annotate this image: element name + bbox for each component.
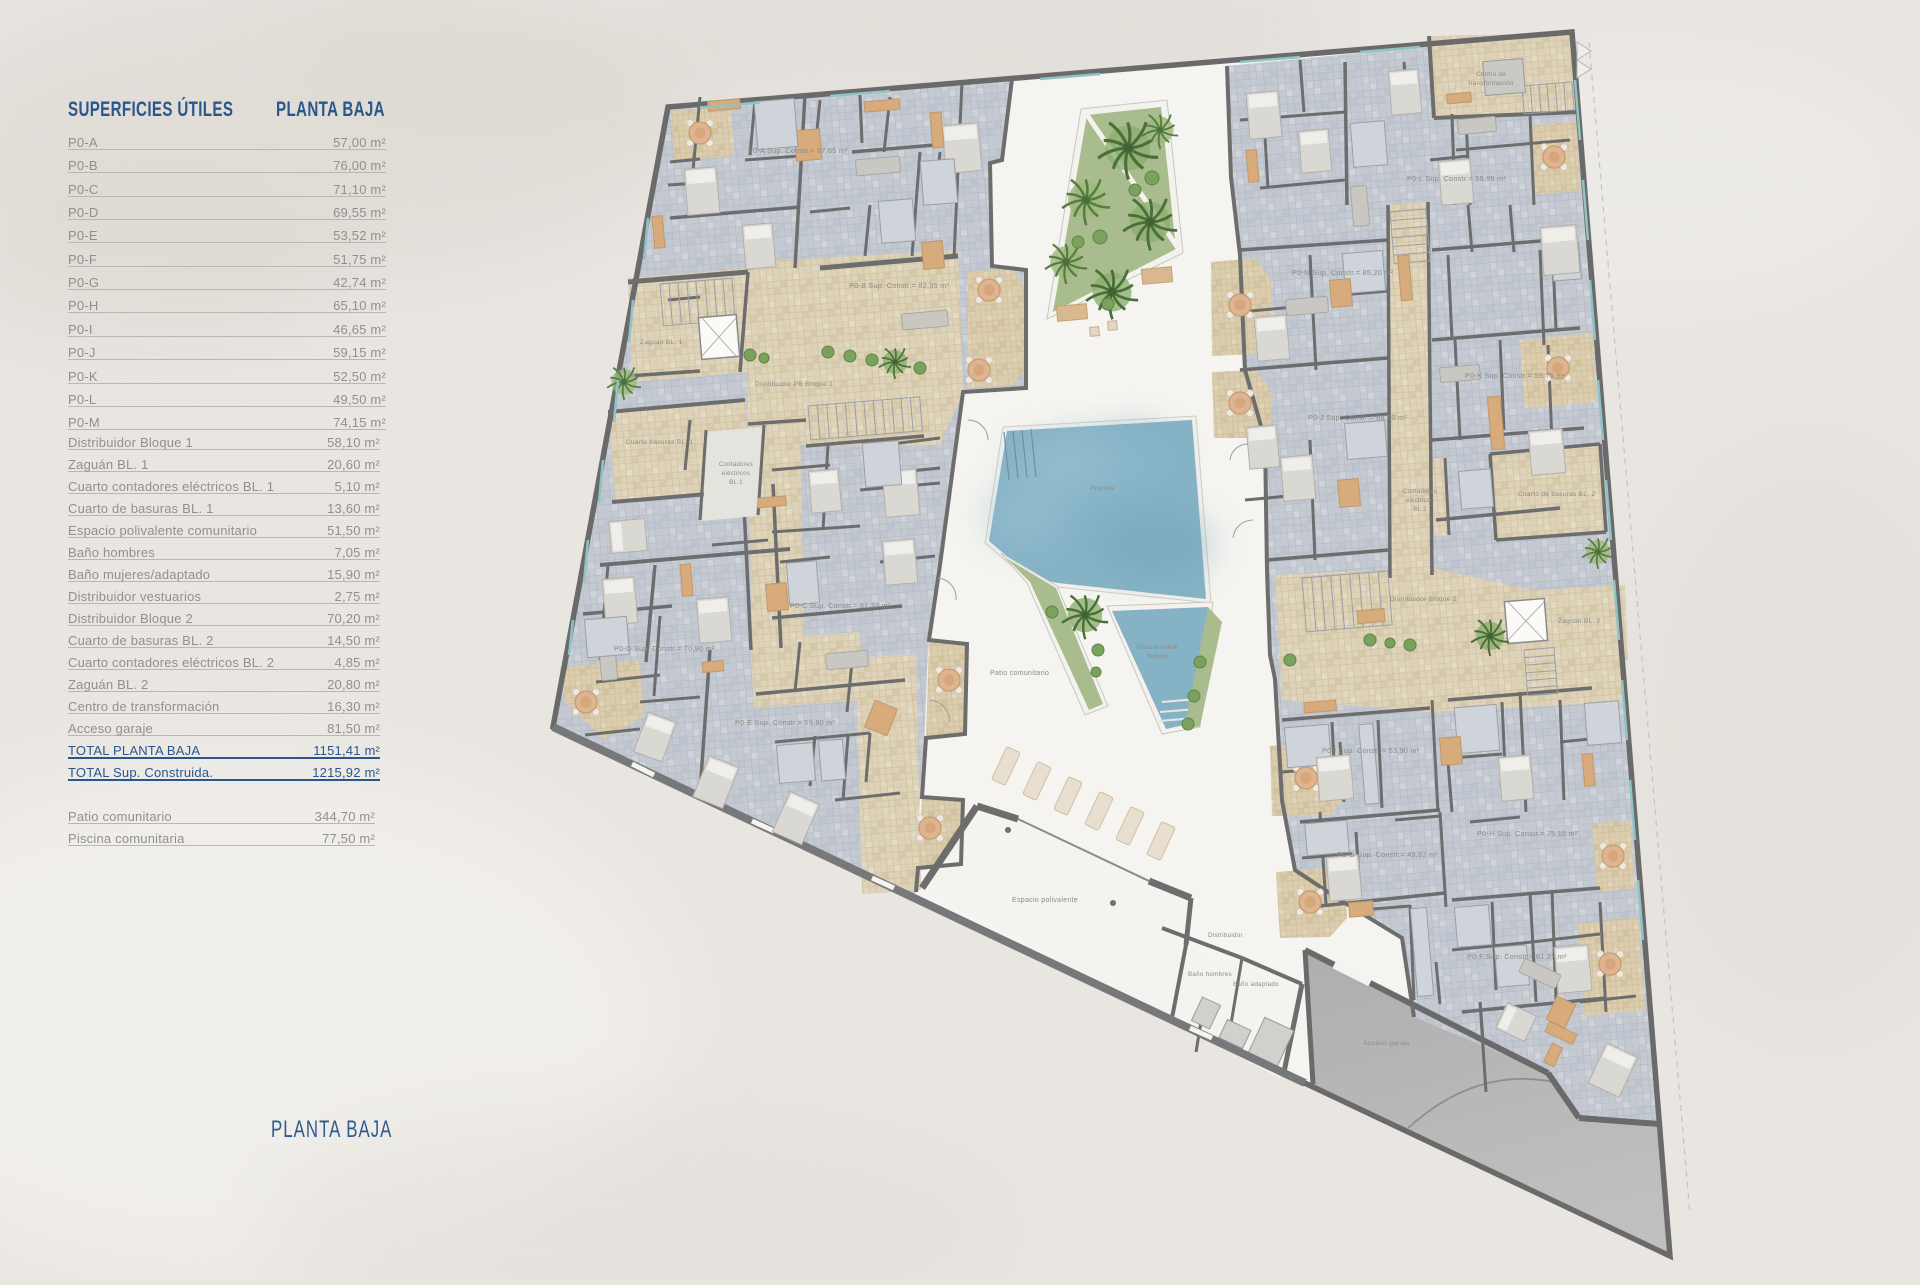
svg-text:P0-C Sup. Constr.= 81,32 m²: P0-C Sup. Constr.= 81,32 m²	[790, 601, 891, 610]
svg-text:Piscina: Piscina	[1090, 485, 1114, 492]
svg-text:Contadores: Contadores	[1403, 489, 1437, 495]
svg-text:Baño hombres: Baño hombres	[1188, 971, 1232, 978]
svg-text:transformación: transformación	[1468, 80, 1513, 87]
svg-text:P0-F Sup. Constr.= 61,25 m²: P0-F Sup. Constr.= 61,25 m²	[1467, 952, 1567, 961]
svg-text:Distribuidor Bloque 2: Distribuidor Bloque 2	[1390, 596, 1457, 603]
svg-text:BL.1: BL.1	[729, 480, 743, 486]
svg-text:Distribuidor: Distribuidor	[1208, 932, 1243, 939]
svg-text:P0-G Sup. Constr.= 49,82 m²: P0-G Sup. Constr.= 49,82 m²	[1337, 850, 1438, 859]
svg-text:Zaguán BL. 2: Zaguán BL. 2	[1558, 618, 1601, 625]
svg-text:eléctricos: eléctricos	[1406, 498, 1434, 504]
svg-text:P0-L Sup. Constr.= 55,95 m²: P0-L Sup. Constr.= 55,95 m²	[1407, 174, 1506, 183]
svg-text:P0-D Sup. Constr.= 70,90 m²: P0-D Sup. Constr.= 70,90 m²	[614, 644, 715, 653]
svg-text:Espacio polivalente: Espacio polivalente	[1012, 897, 1078, 904]
svg-text:P0-H Sup. Constr.= 75,15 m²: P0-H Sup. Constr.= 75,15 m²	[1477, 829, 1578, 838]
svg-text:Cuarto basuras BL. 1: Cuarto basuras BL. 1	[626, 439, 694, 446]
svg-text:Zaguán BL. 1: Zaguán BL. 1	[640, 339, 683, 346]
svg-text:P0-K Sup. Constr.= 59,75 m²: P0-K Sup. Constr.= 59,75 m²	[1465, 371, 1565, 380]
svg-text:P0-A Sup. Constr.= 67,65 m²: P0-A Sup. Constr.= 67,65 m²	[748, 146, 848, 155]
svg-text:Acceso garaje: Acceso garaje	[1363, 1040, 1410, 1047]
svg-text:Patio comunitario: Patio comunitario	[990, 670, 1049, 677]
svg-text:P0-M Sup. Constr.= 85,20 m²: P0-M Sup. Constr.= 85,20 m²	[1292, 268, 1394, 277]
svg-text:Distribuidor PB Bloque 1: Distribuidor PB Bloque 1	[755, 381, 833, 388]
svg-text:forjado: forjado	[1146, 653, 1167, 660]
svg-text:Centro de: Centro de	[1476, 71, 1506, 78]
svg-text:P0-I Sup. Constr.= 53,90 m²: P0-I Sup. Constr.= 53,90 m²	[1322, 746, 1420, 755]
svg-text:P0-E Sup. Constr.= 59,80 m²: P0-E Sup. Constr.= 59,80 m²	[735, 718, 835, 727]
svg-text:P0-B Sup. Constr.= 82,35 m²: P0-B Sup. Constr.= 82,35 m²	[849, 281, 949, 290]
svg-text:P0-J Sup. Constr.= 68,00 m²: P0-J Sup. Constr.= 68,00 m²	[1308, 413, 1407, 422]
svg-text:Cuarto de basuras BL. 2: Cuarto de basuras BL. 2	[1518, 491, 1595, 498]
svg-text:Baño adaptado: Baño adaptado	[1233, 981, 1279, 988]
svg-text:Piscina sobre: Piscina sobre	[1136, 644, 1177, 651]
svg-text:BL.2: BL.2	[1413, 507, 1427, 513]
svg-text:eléctricos: eléctricos	[722, 471, 750, 477]
svg-text:Contadores: Contadores	[719, 462, 753, 468]
